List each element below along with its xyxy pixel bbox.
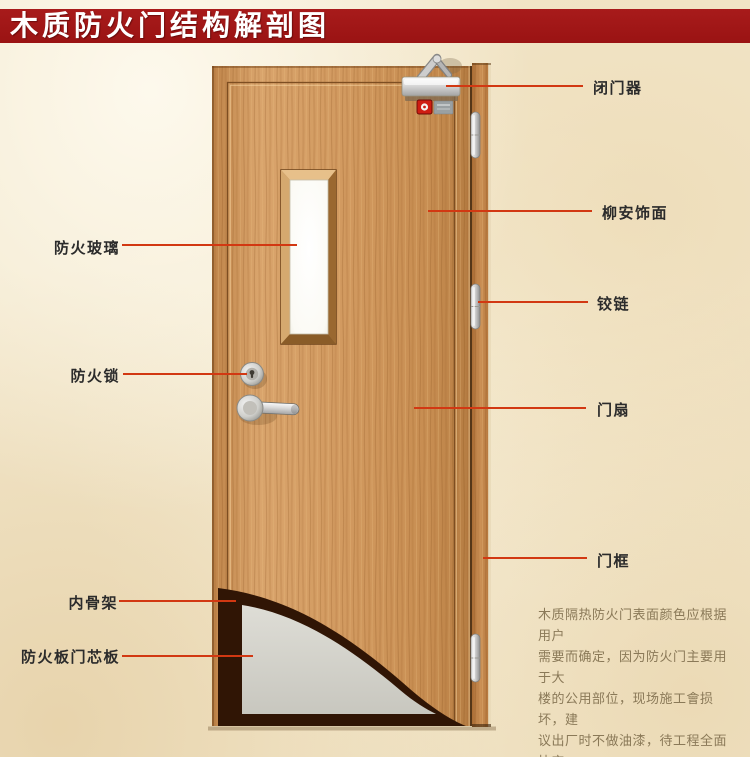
leader-line-door-leaf [414, 407, 586, 409]
label-fire-glass: 防火玻璃 [54, 237, 120, 258]
door-bottom-shadow [208, 727, 496, 731]
door-closer [402, 55, 462, 101]
page: 木质防火门结构解剖图 [0, 0, 750, 757]
door-gap-highlight [469, 66, 470, 726]
label-hinge: 铰链 [597, 293, 630, 314]
label-door-frame: 门框 [597, 550, 630, 571]
label-fire-lock: 防火锁 [70, 365, 120, 386]
fire-door-illustration [195, 48, 505, 750]
leader-line-core-board [122, 655, 253, 657]
label-door-leaf: 门扇 [597, 399, 630, 420]
door-gap-line [470, 66, 472, 726]
hinge-bottom [471, 634, 480, 682]
leader-line-door-frame [483, 557, 587, 559]
page-title: 木质防火门结构解剖图 [0, 9, 750, 43]
fire-glass-panel [281, 170, 336, 344]
leader-line-lauan-veneer [428, 210, 592, 212]
hinge-top [471, 112, 480, 158]
leader-line-skeleton [119, 600, 236, 602]
leader-line-fire-glass [122, 244, 297, 246]
door-frame [472, 63, 491, 727]
label-fire-core-board: 防火板门芯板 [21, 646, 120, 667]
fire-alarm-indicator [417, 100, 432, 114]
hinge-middle [471, 284, 480, 329]
description-note: 木质隔热防火门表面颜色应根据用户 需要而确定，因为防火门主要用于大 楼的公用部位… [538, 604, 738, 757]
nameplate [434, 101, 453, 114]
leader-line-fire-lock [123, 373, 247, 375]
leader-line-door-closer [446, 85, 583, 87]
leader-line-hinge [478, 301, 588, 303]
label-lauan-veneer: 柳安饰面 [602, 202, 668, 223]
label-inner-skeleton: 内骨架 [68, 592, 118, 613]
label-door-closer: 闭门器 [593, 77, 643, 98]
